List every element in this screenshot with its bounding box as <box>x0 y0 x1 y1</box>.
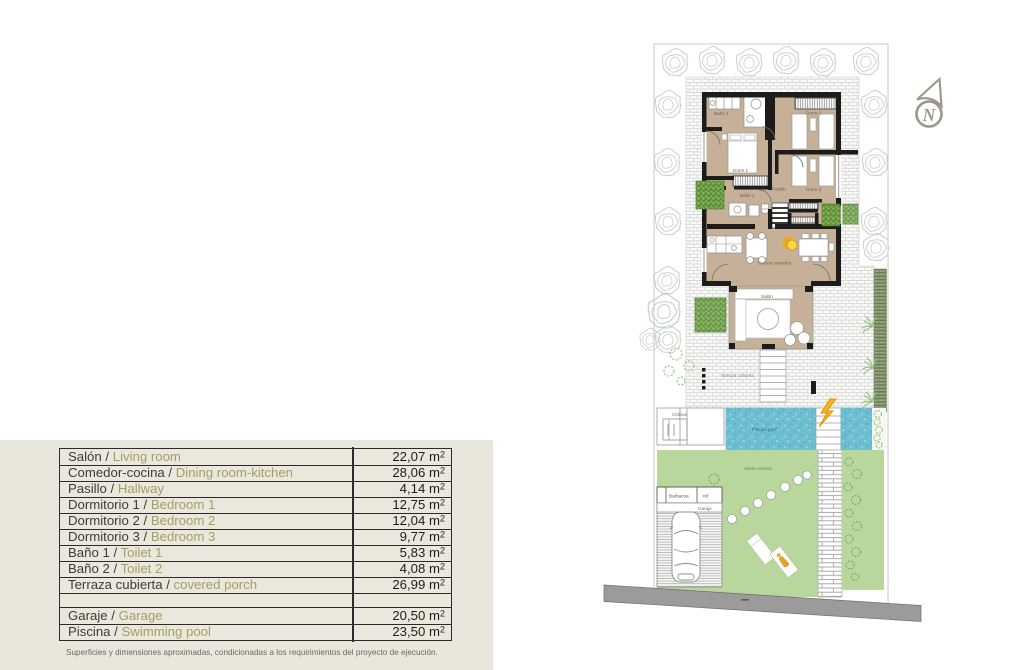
svg-text:Garaje: Garaje <box>698 506 712 511</box>
svg-text:Terraza cubierta: Terraza cubierta <box>721 373 754 378</box>
svg-text:Dorm 3: Dorm 3 <box>806 187 822 192</box>
svg-text:Salón: Salón <box>761 294 773 299</box>
svg-text:ref.: ref. <box>703 494 710 499</box>
svg-text:Baño 2: Baño 2 <box>740 193 755 198</box>
svg-text:Dorm 1: Dorm 1 <box>733 168 749 173</box>
svg-text:Baño 1: Baño 1 <box>714 111 729 116</box>
svg-text:Cocina comedor: Cocina comedor <box>758 261 792 266</box>
svg-text:Verde exterior: Verde exterior <box>744 466 773 471</box>
svg-text:Barbacoa: Barbacoa <box>669 494 689 499</box>
svg-text:Piscina pool: Piscina pool <box>752 427 777 432</box>
svg-text:N: N <box>922 105 937 125</box>
svg-text:Dorm 2: Dorm 2 <box>806 111 822 116</box>
svg-text:Pasillo: Pasillo <box>772 187 786 192</box>
